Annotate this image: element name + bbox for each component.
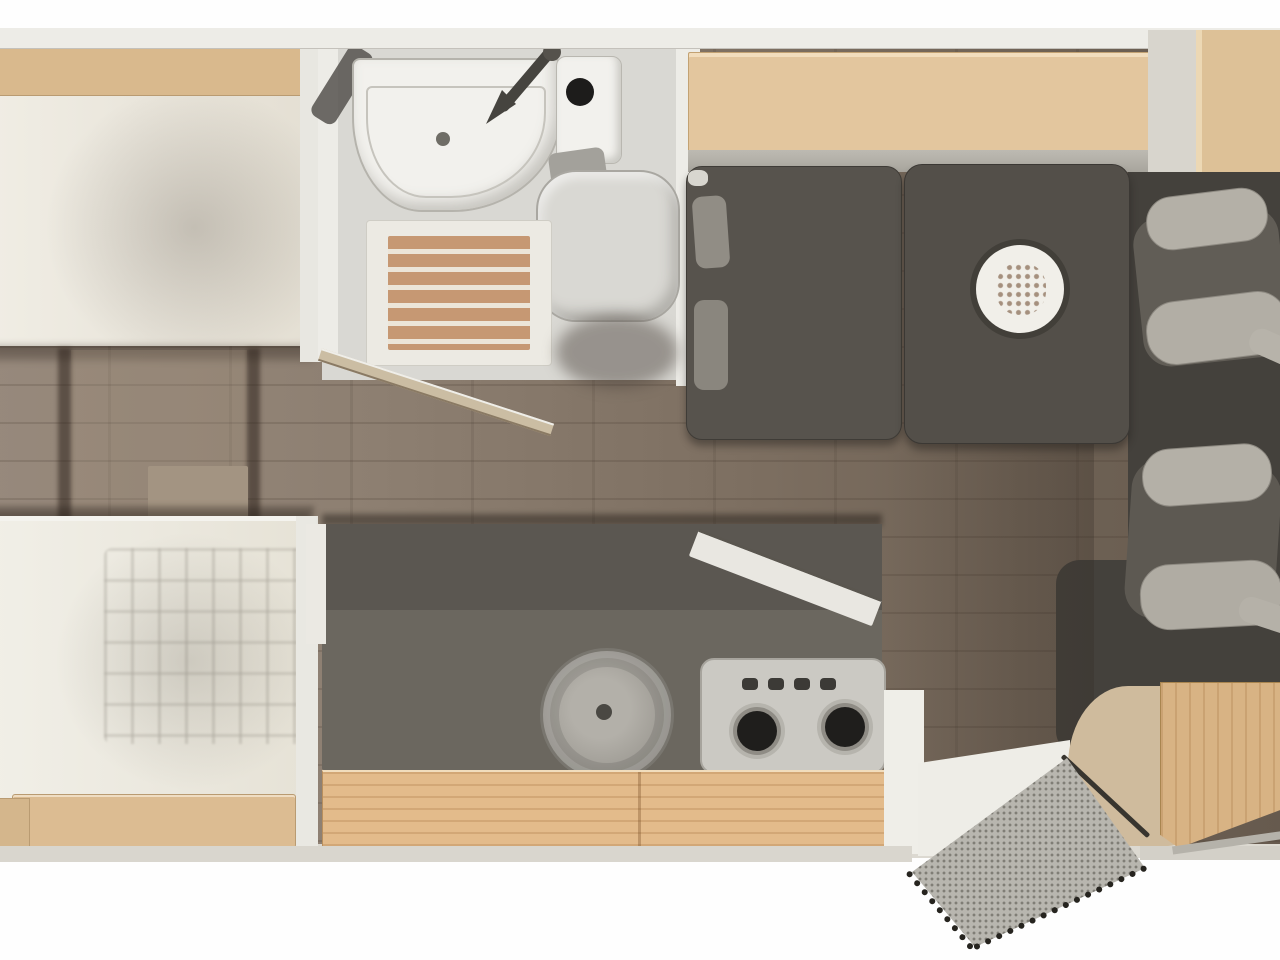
overhead-sideboard xyxy=(688,52,1150,152)
bathroom-shadow xyxy=(556,316,678,388)
footboard-shelf-stub xyxy=(0,798,30,848)
hob-knob xyxy=(794,678,810,690)
hob-burner-right xyxy=(825,707,865,747)
toilet-flush-button xyxy=(566,78,594,106)
bench-corner-trim xyxy=(688,170,708,186)
top-wall xyxy=(0,28,1280,49)
bottom-wall-left xyxy=(0,846,912,862)
duvet-quilt-texture xyxy=(104,548,304,744)
sink-drain xyxy=(596,704,612,720)
toilet-lid xyxy=(536,170,680,322)
tap-icon xyxy=(470,38,570,138)
driver-seat-headrest xyxy=(1140,442,1274,509)
headboard-shelf xyxy=(0,44,308,96)
hob-burner-left xyxy=(737,711,777,751)
plate-food xyxy=(996,263,1046,315)
drawer-seam xyxy=(638,772,641,850)
kitchen-wall-left xyxy=(306,524,326,644)
footboard-shelf xyxy=(12,794,296,848)
washbasin-drain xyxy=(436,132,450,146)
bench-back-cushion xyxy=(692,195,731,269)
hob-knob xyxy=(768,678,784,690)
step-gap-right xyxy=(247,348,260,520)
shower-duckboard xyxy=(388,236,530,350)
bench-back-cushion xyxy=(694,300,728,390)
hob-knob xyxy=(742,678,758,690)
kitchen-drawer-front xyxy=(322,770,886,855)
motorhome-floorplan xyxy=(0,0,1280,960)
step-gap-left xyxy=(58,348,71,520)
hob-knob xyxy=(820,678,836,690)
window-gap-strip xyxy=(1148,30,1196,172)
